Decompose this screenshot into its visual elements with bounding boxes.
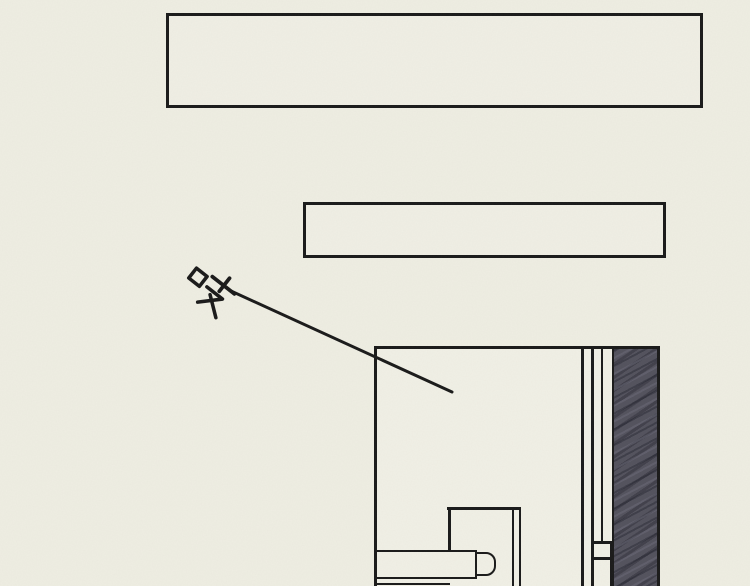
door-leaf-line-a: [512, 507, 515, 586]
floor-line: [377, 583, 450, 586]
table-edge: [376, 550, 477, 579]
door-frame-line-2: [591, 349, 594, 586]
furniture-back-top-line: [447, 507, 520, 510]
door-frame-line-1: [581, 349, 584, 586]
sfx-pointer-line: [220, 280, 462, 402]
caption-box-middle-text: [306, 205, 663, 255]
caption-box-middle: [303, 202, 666, 258]
door-latch-bottom-line: [591, 557, 612, 560]
door-frame-line-3: [601, 349, 604, 543]
door-latch-top-line: [591, 541, 612, 544]
shaded-wall-strip: [612, 349, 658, 586]
caption-box-top: [166, 13, 703, 108]
caption-box-top-text: [169, 16, 700, 105]
furniture-back-left-line: [448, 507, 451, 555]
comic-page: 吱: [0, 0, 750, 586]
door-leaf-line-b: [519, 507, 522, 586]
